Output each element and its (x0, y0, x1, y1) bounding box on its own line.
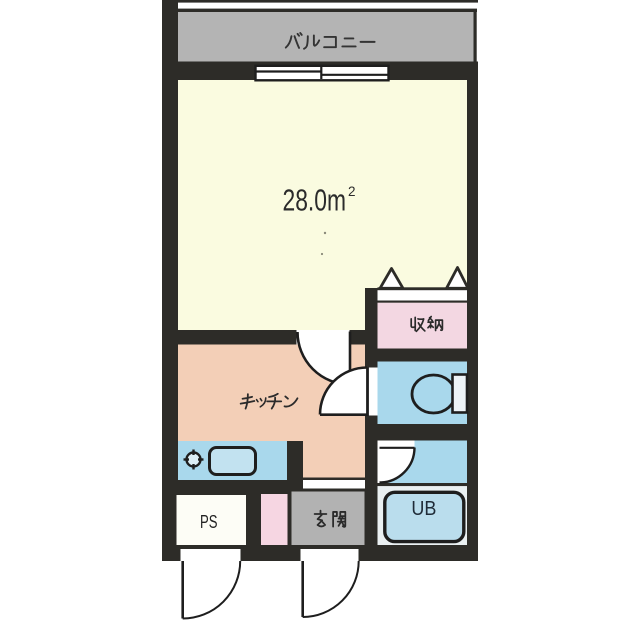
svg-text:28.0m: 28.0m (283, 184, 347, 218)
svg-text:2: 2 (348, 184, 356, 199)
svg-text:UB: UB (411, 497, 436, 520)
svg-text:PS: PS (200, 511, 218, 532)
